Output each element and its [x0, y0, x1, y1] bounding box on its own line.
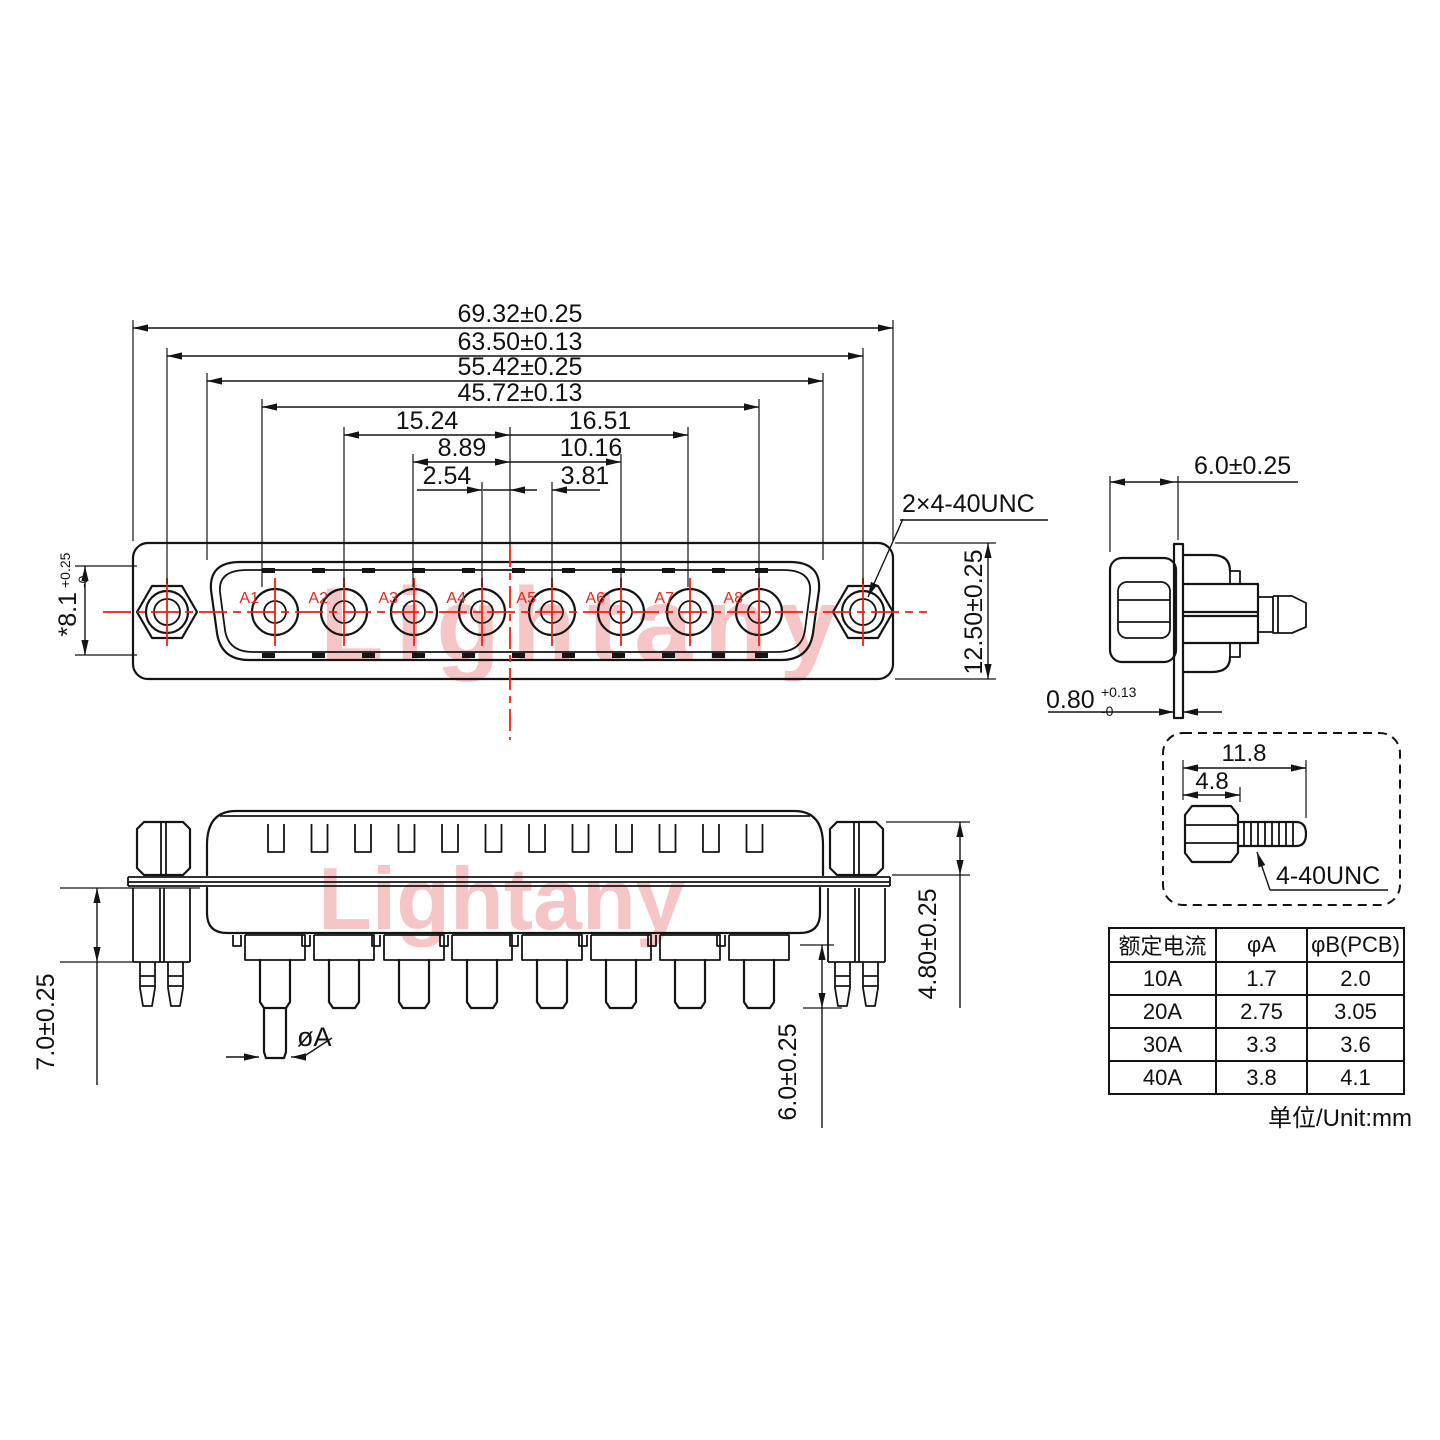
dim-standoff-length: 7.0±0.25 — [32, 973, 60, 1070]
side-jackscrew — [1258, 596, 1306, 633]
contact-pin-long — [260, 960, 290, 1058]
pin-label-a6: A6 — [585, 590, 605, 607]
col-header-dia-b-pcb: φB(PCB) — [1307, 928, 1404, 962]
dim-pin-length-text: 6.0±0.25 — [774, 1023, 802, 1120]
cell-current: 30A — [1109, 1028, 1216, 1061]
dim-standoff-length-text: 7.0±0.25 — [32, 973, 60, 1070]
dim-a3-center: 8.89 — [438, 434, 487, 462]
technical-drawing-sheet: Lightany Lightany — [0, 0, 1440, 1440]
dim-total-width: 69.32±0.25 — [458, 300, 583, 328]
pin-label-a1: A1 — [239, 590, 259, 607]
dim-depth: 6.0±0.25 — [1194, 452, 1291, 480]
pin-label-a3: A3 — [378, 590, 398, 607]
cell-dia-a: 3.3 — [1216, 1028, 1307, 1061]
standoff-body-right — [828, 888, 885, 1006]
dim-shell-height-main: *8.1 — [54, 592, 82, 636]
col-header-dia-a: φA — [1216, 928, 1307, 962]
standoff-hex-right — [830, 822, 883, 875]
dim-pin-length: 6.0±0.25 — [774, 1023, 802, 1120]
side-hex-facets — [1118, 600, 1170, 622]
pin-label-a4: A4 — [446, 590, 466, 607]
dim-flange-thk-sub: -0 — [1101, 703, 1114, 719]
bottom-shell-slots — [268, 824, 763, 852]
drawing-canvas: Lightany Lightany — [0, 0, 1440, 1440]
standoff-hex-left — [137, 822, 190, 875]
table-row: 40A 3.8 4.1 — [1109, 1061, 1404, 1094]
cell-current: 20A — [1109, 995, 1216, 1028]
dim-flange-thickness: 0.80 +0.13 -0 — [1046, 684, 1137, 719]
cell-current: 10A — [1109, 962, 1216, 995]
pin-label-a5: A5 — [516, 590, 536, 607]
dim-a2-center: 15.24 — [396, 407, 459, 435]
side-shell-back — [1183, 555, 1230, 672]
cell-current: 40A — [1109, 1061, 1216, 1094]
table-header-row: 额定电流 φA φB(PCB) — [1109, 928, 1404, 962]
dim-screw-hex-length: 4.8 — [1195, 768, 1228, 795]
dim-center-a5: 3.81 — [561, 462, 610, 490]
screw-hex-facets — [1185, 825, 1238, 843]
dim-shell-width: 55.42±0.25 — [458, 353, 583, 381]
dim-shell-height-sup: +0.25 — [57, 552, 73, 588]
dim-mount-spacing: 63.50±0.13 — [458, 328, 583, 356]
pin-label-a2: A2 — [308, 590, 328, 607]
side-view: 6.0±0.25 0.80 +0.13 -0 — [1046, 452, 1306, 719]
cell-dia-b: 3.05 — [1307, 995, 1404, 1028]
unit-note: 单位/Unit:mm — [1112, 1098, 1412, 1133]
table-row: 10A 1.7 2.0 — [1109, 962, 1404, 995]
side-barrel — [1183, 584, 1258, 643]
cell-dia-a: 3.8 — [1216, 1061, 1307, 1094]
side-extension-lines — [1110, 476, 1178, 552]
dim-flange-thk-main: 0.80 — [1046, 686, 1095, 714]
dim-shell-height-sub: -0 — [75, 575, 91, 588]
contact-pins — [329, 960, 774, 1008]
cell-dia-a: 1.7 — [1216, 962, 1307, 995]
dim-center-a6: 10.16 — [560, 434, 623, 462]
table-row: 20A 2.75 3.05 — [1109, 995, 1404, 1028]
dim-flange-height-text: 12.50±0.25 — [960, 550, 988, 675]
standoff-body-left — [133, 888, 190, 1006]
col-header-rated-current: 额定电流 — [1109, 928, 1216, 962]
rated-current-table: 额定电流 φA φB(PCB) 10A 1.7 2.0 20A 2.75 3.0… — [1108, 927, 1405, 1095]
dim-a4-center: 2.54 — [423, 462, 472, 490]
dim-flange-thk-sup: +0.13 — [1101, 684, 1137, 700]
dim-screw-total-length: 11.8 — [1222, 740, 1267, 767]
screw-thread-ticks — [1244, 822, 1293, 846]
pin-label-a8: A8 — [723, 590, 743, 607]
watermark-front: Lightany — [320, 567, 849, 683]
side-shell-front — [1110, 558, 1176, 662]
dim-center-a7: 16.51 — [569, 407, 632, 435]
dim-flange-height: 12.50±0.25 — [960, 550, 988, 675]
screw-detail: 11.8 4.8 4-40UNC — [1163, 733, 1400, 905]
pin-label-a7: A7 — [654, 590, 674, 607]
brand-watermarks: Lightany Lightany — [318, 567, 849, 948]
side-hex-nut — [1118, 582, 1170, 638]
cell-dia-b: 4.1 — [1307, 1061, 1404, 1094]
dim-contact-span: 45.72±0.13 — [458, 379, 583, 407]
table-row: 30A 3.3 3.6 — [1109, 1028, 1404, 1061]
dim-pin-diameter: øA — [297, 1022, 332, 1052]
cell-dia-b: 3.6 — [1307, 1028, 1404, 1061]
dim-nut-height-text: 4.80±0.25 — [914, 888, 942, 999]
screw-hex-body — [1185, 806, 1238, 862]
dim-nut-height: 4.80±0.25 — [914, 888, 942, 999]
screw-thread-label: 4-40UNC — [1276, 862, 1380, 890]
cell-dia-a: 2.75 — [1216, 995, 1307, 1028]
cell-dia-b: 2.0 — [1307, 962, 1404, 995]
thread-callout: 2×4-40UNC — [902, 490, 1035, 518]
